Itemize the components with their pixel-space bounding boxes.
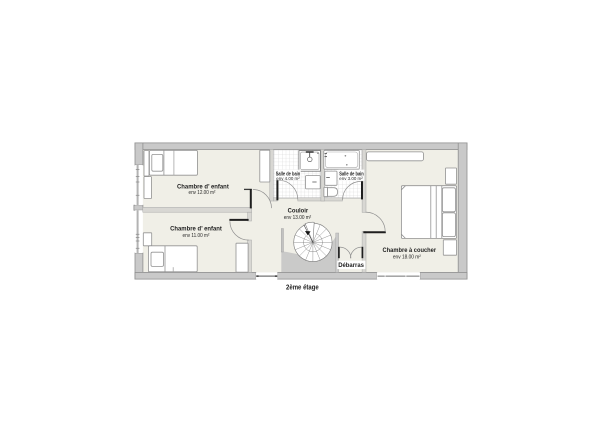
svg-text:env 12.00 m²: env 12.00 m² [189,190,216,196]
svg-text:env 4.00 m²: env 4.00 m² [276,176,300,182]
svg-text:Couloir: Couloir [288,208,309,215]
svg-text:env 18.00 m²: env 18.00 m² [393,254,421,260]
svg-text:Chambre d’ enfant: Chambre d’ enfant [170,226,223,233]
svg-text:2ème étage: 2ème étage [286,284,319,291]
svg-text:env 13.00 m²: env 13.00 m² [284,215,312,221]
svg-text:env 3.00 m²: env 3.00 m² [339,176,363,182]
svg-text:env 11.00 m²: env 11.00 m² [183,233,210,239]
svg-text:Chambre à coucher: Chambre à coucher [383,247,437,254]
svg-text:Débarras: Débarras [338,262,364,269]
